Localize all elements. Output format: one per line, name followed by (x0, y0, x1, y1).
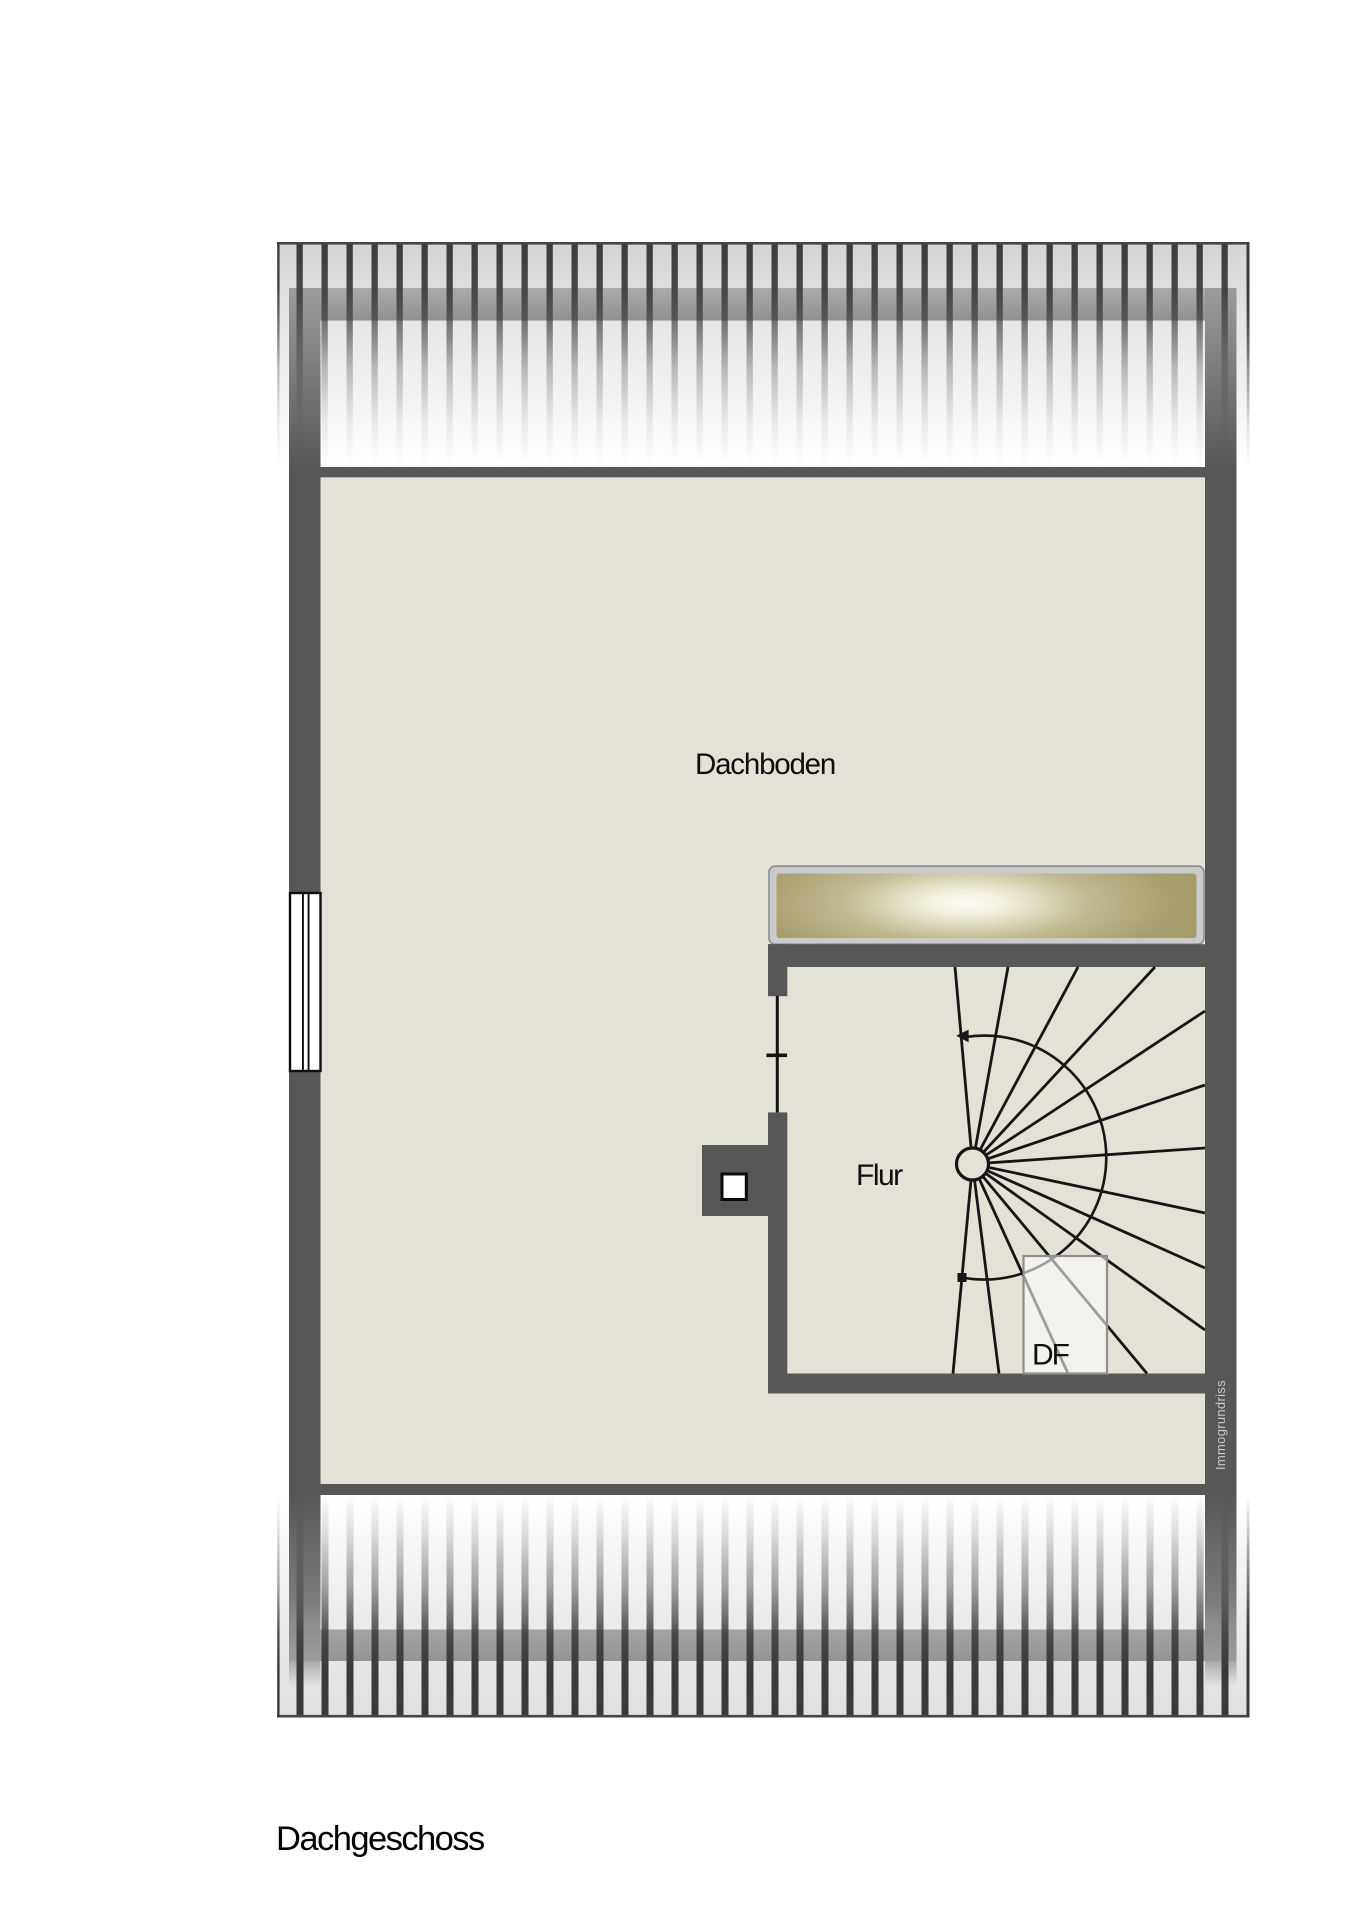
svg-text:Dachboden: Dachboden (695, 748, 835, 781)
svg-text:Immogrundriss: Immogrundriss (1213, 1380, 1228, 1470)
svg-text:Dachgeschoss: Dachgeschoss (276, 1820, 484, 1858)
svg-text:DF: DF (1032, 1339, 1070, 1372)
svg-text:Flur: Flur (856, 1159, 903, 1192)
